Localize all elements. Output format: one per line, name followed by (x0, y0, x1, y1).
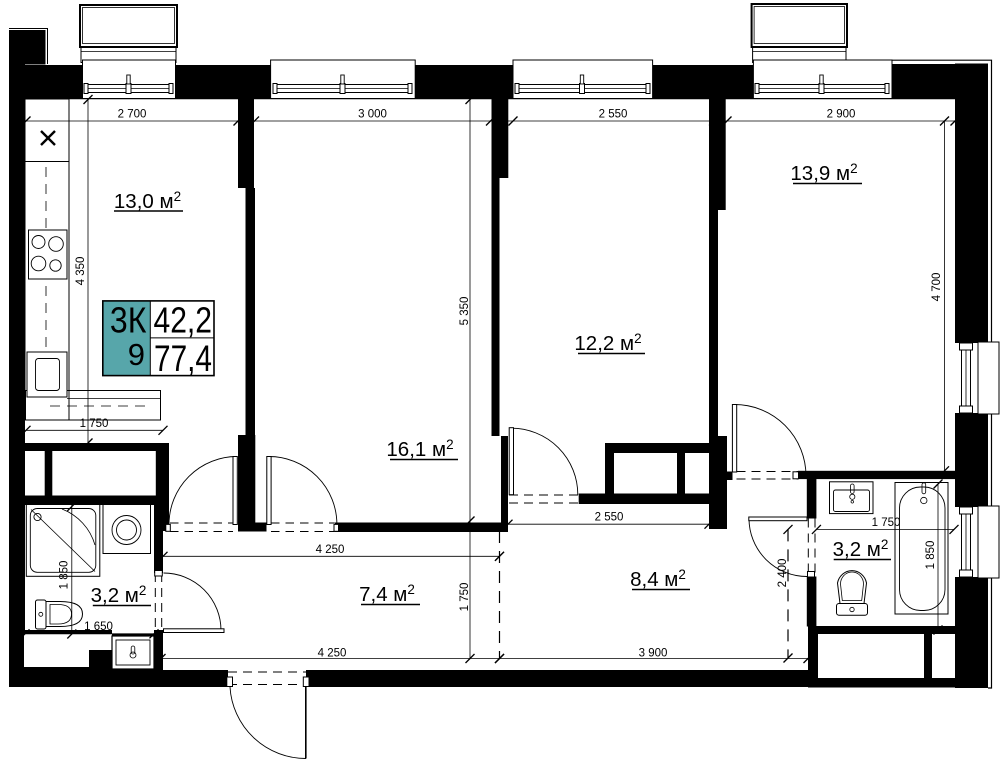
svg-text:1 650: 1 650 (84, 621, 113, 633)
svg-text:4 350: 4 350 (75, 257, 87, 286)
svg-text:9: 9 (128, 337, 145, 372)
svg-text:3 000: 3 000 (358, 109, 387, 121)
svg-text:13,9 м2: 13,9 м2 (790, 161, 857, 185)
svg-text:2 550: 2 550 (595, 512, 624, 524)
svg-text:4 250: 4 250 (316, 544, 345, 556)
svg-text:77,4: 77,4 (154, 338, 212, 379)
svg-text:2 700: 2 700 (118, 109, 147, 121)
svg-text:1 750: 1 750 (459, 583, 471, 612)
svg-text:2 400: 2 400 (777, 559, 789, 588)
svg-text:4 700: 4 700 (931, 273, 943, 302)
svg-text:12,2 м2: 12,2 м2 (574, 331, 641, 355)
svg-text:3,2 м2: 3,2 м2 (91, 583, 147, 607)
svg-text:8,4 м2: 8,4 м2 (630, 567, 686, 591)
svg-text:42,2: 42,2 (154, 300, 213, 341)
svg-text:13,0 м2: 13,0 м2 (114, 189, 181, 213)
svg-text:1 750: 1 750 (872, 517, 901, 529)
svg-text:2 550: 2 550 (599, 109, 628, 121)
svg-text:3,2 м2: 3,2 м2 (833, 537, 889, 561)
svg-text:1 850: 1 850 (59, 561, 71, 590)
svg-text:4 250: 4 250 (318, 648, 347, 660)
svg-text:1 850: 1 850 (925, 541, 937, 570)
svg-text:7,4 м2: 7,4 м2 (359, 582, 415, 606)
svg-text:3К: 3К (110, 300, 147, 341)
svg-text:3 900: 3 900 (639, 648, 668, 660)
svg-text:2 900: 2 900 (827, 109, 856, 121)
svg-text:16,1 м2: 16,1 м2 (386, 437, 453, 461)
svg-text:1 750: 1 750 (80, 418, 109, 430)
svg-text:5 350: 5 350 (459, 297, 471, 326)
